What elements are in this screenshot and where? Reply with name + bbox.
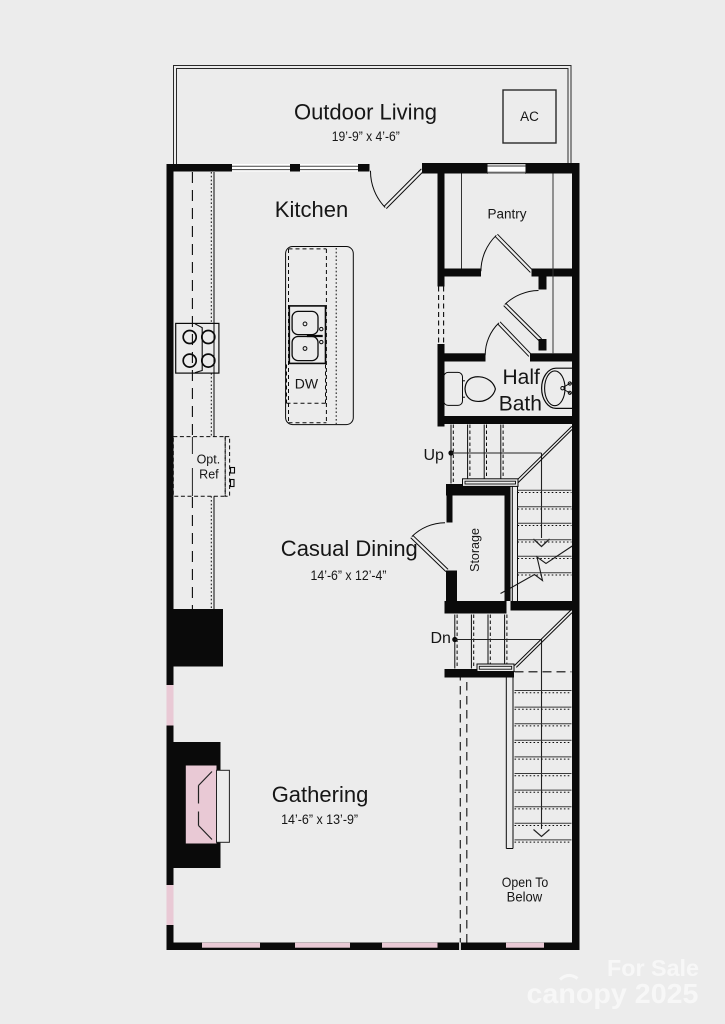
svg-text:Half: Half bbox=[503, 366, 541, 389]
svg-text:14’-6” x 12’-4”: 14’-6” x 12’-4” bbox=[311, 567, 387, 583]
svg-text:Outdoor Living: Outdoor Living bbox=[294, 100, 437, 125]
svg-text:Opt.: Opt. bbox=[197, 453, 221, 467]
svg-text:Up: Up bbox=[424, 447, 445, 464]
svg-text:Dn: Dn bbox=[431, 630, 451, 647]
svg-text:14’-6” x 13’-9”: 14’-6” x 13’-9” bbox=[281, 811, 358, 827]
svg-text:Casual Dining: Casual Dining bbox=[281, 536, 418, 561]
svg-text:Gathering: Gathering bbox=[272, 782, 369, 807]
svg-text:Storage: Storage bbox=[468, 528, 482, 572]
svg-text:19’-9” x 4’-6”: 19’-9” x 4’-6” bbox=[332, 128, 400, 144]
svg-text:AC: AC bbox=[520, 109, 539, 124]
svg-text:Ref: Ref bbox=[199, 468, 219, 482]
svg-text:Kitchen: Kitchen bbox=[275, 197, 348, 222]
svg-text:Below: Below bbox=[507, 889, 543, 905]
svg-text:Bath: Bath bbox=[499, 393, 542, 416]
svg-text:canopy 2025: canopy 2025 bbox=[527, 978, 699, 1009]
svg-text:DW: DW bbox=[295, 376, 319, 392]
svg-text:Pantry: Pantry bbox=[487, 207, 526, 222]
